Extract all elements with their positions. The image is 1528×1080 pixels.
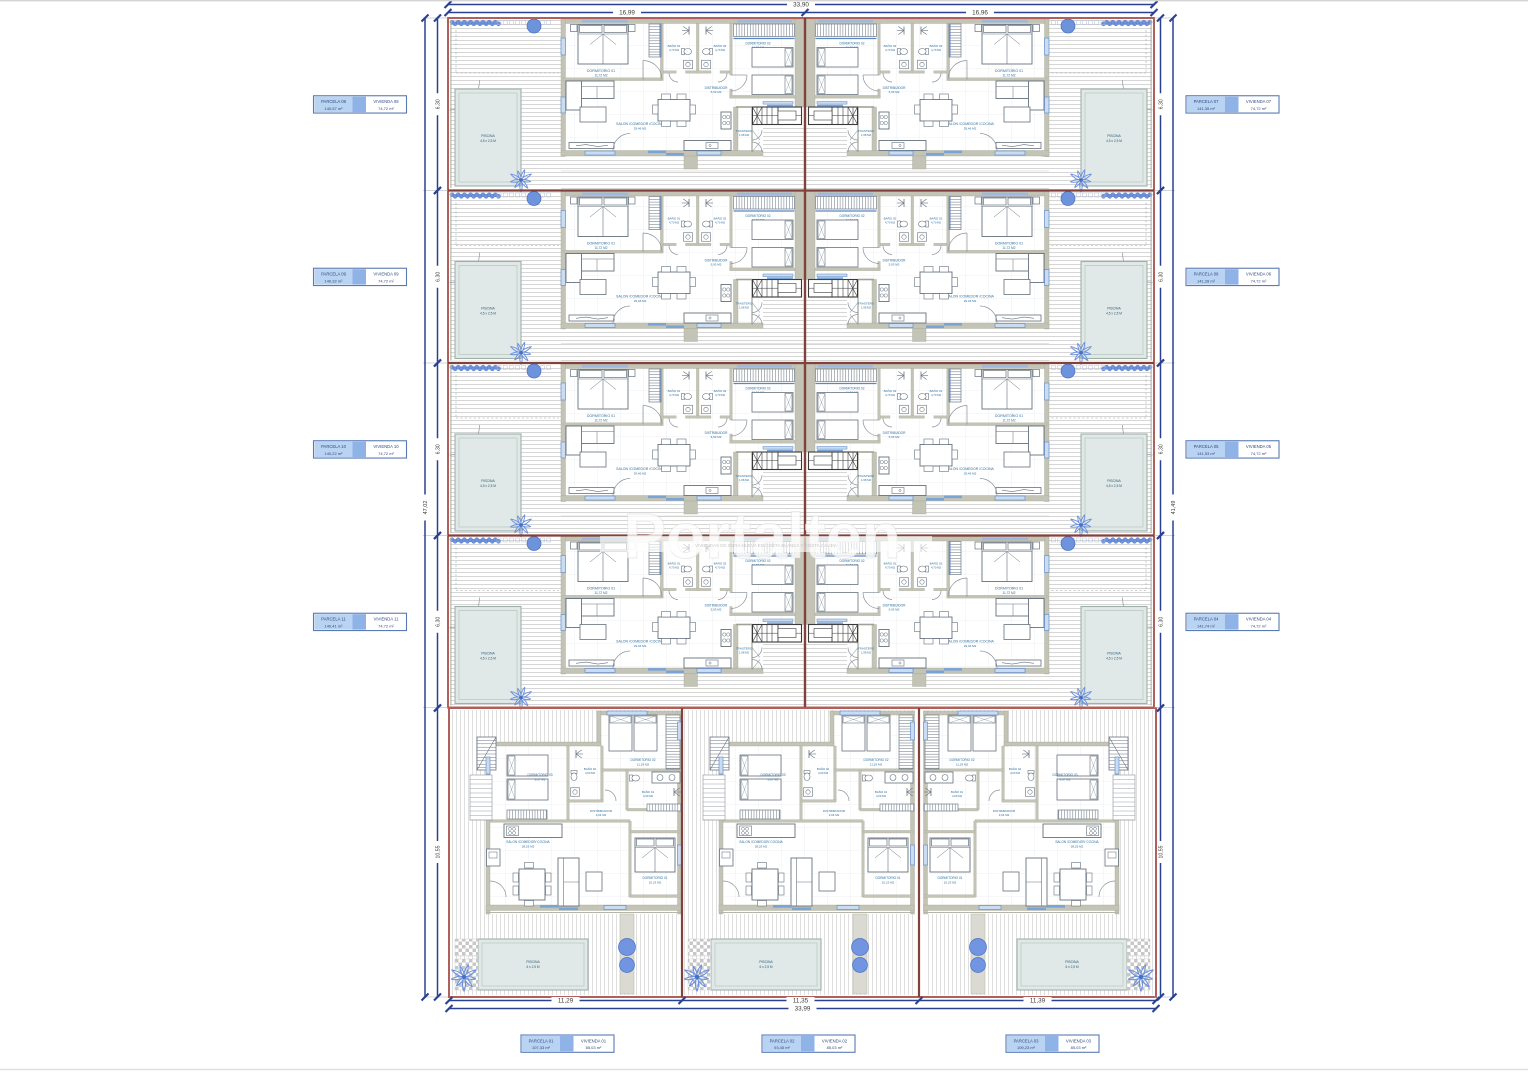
svg-text:DORMITORIO 02: DORMITORIO 02 <box>630 758 655 762</box>
svg-text:PISCINA: PISCINA <box>1107 652 1121 656</box>
svg-text:DORMITORIO 01: DORMITORIO 01 <box>587 414 615 418</box>
svg-text:11,35: 11,35 <box>793 998 809 1005</box>
svg-text:1,98 M2: 1,98 M2 <box>739 306 750 310</box>
svg-text:74,72 m²: 74,72 m² <box>378 451 394 456</box>
svg-text:4,5 x 2,5 M: 4,5 x 2,5 M <box>480 312 496 316</box>
svg-text:4,70 M2: 4,70 M2 <box>931 566 942 570</box>
svg-text:109,23 m²: 109,23 m² <box>1017 1045 1036 1050</box>
svg-text:4,70 M2: 4,70 M2 <box>931 48 942 52</box>
svg-text:29,46 M2: 29,46 M2 <box>964 299 977 303</box>
svg-text:4,70 M2: 4,70 M2 <box>715 48 726 52</box>
svg-text:28,25 M2: 28,25 M2 <box>755 845 768 849</box>
svg-text:4,5 x 2,5 M: 4,5 x 2,5 M <box>1106 139 1122 143</box>
svg-text:93,45 m²: 93,45 m² <box>774 1045 790 1050</box>
svg-text:VIVIENDA 05: VIVIENDA 05 <box>1246 444 1272 449</box>
svg-text:PARCELA 09: PARCELA 09 <box>321 272 346 277</box>
svg-text:PISCINA: PISCINA <box>1107 307 1121 311</box>
svg-text:33,90: 33,90 <box>793 2 809 9</box>
svg-text:11,29 M2: 11,29 M2 <box>870 763 883 767</box>
svg-text:1,98 M2: 1,98 M2 <box>739 478 750 482</box>
svg-text:5,93 M2: 5,93 M2 <box>889 90 900 94</box>
svg-text:PARCELA 01: PARCELA 01 <box>529 1038 554 1043</box>
svg-text:PISCINA: PISCINA <box>526 960 540 964</box>
svg-text:PARCELA 10: PARCELA 10 <box>321 444 346 449</box>
svg-text:11,39: 11,39 <box>1030 998 1046 1005</box>
svg-text:DORMITORIO 01: DORMITORIO 01 <box>995 414 1023 418</box>
svg-text:140,57 m²: 140,57 m² <box>324 106 343 111</box>
svg-text:107,33 m²: 107,33 m² <box>532 1045 551 1050</box>
svg-text:DORMITORIO 02: DORMITORIO 02 <box>949 758 974 762</box>
svg-text:3,04 M2: 3,04 M2 <box>596 813 607 817</box>
svg-text:VIVIENDA 01: VIVIENDA 01 <box>581 1038 607 1043</box>
svg-text:SALON /COMEDOR /COCINA: SALON /COMEDOR /COCINA <box>946 122 994 126</box>
svg-text:4,70 M2: 4,70 M2 <box>885 393 896 397</box>
svg-text:4,70 M2: 4,70 M2 <box>715 221 726 225</box>
svg-text:141,53 m²: 141,53 m² <box>1197 451 1216 456</box>
svg-text:85,03 m²: 85,03 m² <box>827 1045 843 1050</box>
svg-text:PARCELA 07: PARCELA 07 <box>1194 99 1219 104</box>
svg-text:85,03 m²: 85,03 m² <box>586 1045 602 1050</box>
svg-text:SALON /COMEDOR /COCINA: SALON /COMEDOR /COCINA <box>946 467 994 471</box>
svg-text:10,23 M2: 10,23 M2 <box>649 881 662 885</box>
svg-text:PISCINA: PISCINA <box>481 134 495 138</box>
svg-text:DORMITORIO 01: DORMITORIO 01 <box>642 876 667 880</box>
svg-text:1,98 M2: 1,98 M2 <box>861 478 872 482</box>
svg-text:SALON /COMEDOR/ COCINA: SALON /COMEDOR/ COCINA <box>739 840 783 844</box>
svg-text:1,98 M2: 1,98 M2 <box>861 651 872 655</box>
svg-text:6,30: 6,30 <box>436 617 442 627</box>
svg-text:85,03 m²: 85,03 m² <box>1071 1045 1087 1050</box>
svg-text:11,72 M2: 11,72 M2 <box>594 74 607 78</box>
svg-text:4,70 M2: 4,70 M2 <box>669 221 680 225</box>
svg-text:4,70 M2: 4,70 M2 <box>669 393 680 397</box>
svg-text:1,98 M2: 1,98 M2 <box>739 133 750 137</box>
svg-text:11,72 M2: 11,72 M2 <box>594 246 607 250</box>
svg-text:4,70 M2: 4,70 M2 <box>669 48 680 52</box>
svg-text:DORMITORIO 03: DORMITORIO 03 <box>760 773 785 777</box>
svg-text:SALON /COMEDOR/ COCINA: SALON /COMEDOR/ COCINA <box>506 840 550 844</box>
svg-text:10,55: 10,55 <box>436 845 442 858</box>
svg-text:SALON /COMEDOR /COCINA: SALON /COMEDOR /COCINA <box>946 295 994 299</box>
svg-text:DORMITORIO 01: DORMITORIO 01 <box>587 69 615 73</box>
svg-text:SALON /COMEDOR /COCINA: SALON /COMEDOR /COCINA <box>946 640 994 644</box>
svg-text:4,70 M2: 4,70 M2 <box>885 221 896 225</box>
svg-text:SALON /COMEDOR /COCINA: SALON /COMEDOR /COCINA <box>616 122 664 126</box>
svg-text:VIVIENDA 09: VIVIENDA 09 <box>373 272 399 277</box>
svg-text:DORMITORIO 03: DORMITORIO 03 <box>527 773 552 777</box>
svg-text:6 x 2,5 M: 6 x 2,5 M <box>759 965 772 969</box>
svg-text:5,93 M2: 5,93 M2 <box>711 435 722 439</box>
svg-text:VIVIENDA 11: VIVIENDA 11 <box>374 617 399 622</box>
svg-text:VIVIENDA 10: VIVIENDA 10 <box>373 444 399 449</box>
svg-text:VIVIENDAS DE OBRA NUEVA EN COS: VIVIENDAS DE OBRA NUEVA EN COSTA BLANCA … <box>695 543 837 548</box>
svg-text:141,28 m²: 141,28 m² <box>1197 278 1216 283</box>
svg-text:74,72 m²: 74,72 m² <box>378 623 394 628</box>
svg-text:1,98 M2: 1,98 M2 <box>739 651 750 655</box>
svg-text:PARCELA 08: PARCELA 08 <box>321 99 346 104</box>
svg-text:5,93 M2: 5,93 M2 <box>889 435 900 439</box>
svg-text:PARCELA 11: PARCELA 11 <box>321 617 346 622</box>
svg-text:29,46 M2: 29,46 M2 <box>964 644 977 648</box>
svg-text:74,72 m²: 74,72 m² <box>1251 451 1267 456</box>
svg-text:4,70 M2: 4,70 M2 <box>931 221 942 225</box>
svg-text:PISCINA: PISCINA <box>1065 960 1079 964</box>
svg-text:DORMITORIO 01: DORMITORIO 01 <box>995 69 1023 73</box>
svg-text:28,25 M2: 28,25 M2 <box>522 845 535 849</box>
svg-text:5,93 M2: 5,93 M2 <box>711 90 722 94</box>
svg-text:16,99: 16,99 <box>619 10 635 17</box>
svg-text:VIVIENDA 06: VIVIENDA 06 <box>1246 272 1272 277</box>
svg-text:4,09 M2: 4,09 M2 <box>952 794 963 798</box>
svg-text:VIVIENDA 02: VIVIENDA 02 <box>822 1038 848 1043</box>
svg-text:4,00 M2: 4,00 M2 <box>818 771 829 775</box>
svg-text:5,93 M2: 5,93 M2 <box>711 263 722 267</box>
svg-text:6,30: 6,30 <box>436 272 442 282</box>
svg-text:10,55: 10,55 <box>1159 845 1165 858</box>
svg-text:11,72 M2: 11,72 M2 <box>1002 74 1015 78</box>
svg-text:PARCELA 04: PARCELA 04 <box>1194 617 1219 622</box>
svg-text:6,30: 6,30 <box>1159 99 1165 109</box>
svg-text:PISCINA: PISCINA <box>481 479 495 483</box>
svg-text:8,67 M2: 8,67 M2 <box>1060 778 1071 782</box>
svg-text:4,70 M2: 4,70 M2 <box>885 48 896 52</box>
svg-text:10,23 M2: 10,23 M2 <box>944 881 957 885</box>
svg-text:29,46 M2: 29,46 M2 <box>634 644 647 648</box>
svg-text:SALON /COMEDOR /COCINA: SALON /COMEDOR /COCINA <box>616 640 664 644</box>
svg-text:4,5 x 2,5 M: 4,5 x 2,5 M <box>480 657 496 661</box>
svg-text:4,70 M2: 4,70 M2 <box>715 393 726 397</box>
svg-text:141,35 m²: 141,35 m² <box>1197 106 1216 111</box>
svg-text:VIVIENDA 03: VIVIENDA 03 <box>1066 1038 1092 1043</box>
svg-text:PISCINA: PISCINA <box>481 652 495 656</box>
svg-text:4,09 M2: 4,09 M2 <box>643 794 654 798</box>
svg-text:74,72 m²: 74,72 m² <box>1251 278 1267 283</box>
svg-text:PISCINA: PISCINA <box>1107 134 1121 138</box>
svg-text:4,5 x 2,5 M: 4,5 x 2,5 M <box>1106 484 1122 488</box>
svg-text:1,98 M2: 1,98 M2 <box>861 306 872 310</box>
svg-text:41,49: 41,49 <box>1171 501 1177 515</box>
svg-text:29,46 M2: 29,46 M2 <box>634 299 647 303</box>
svg-text:47,02: 47,02 <box>423 501 429 515</box>
svg-text:DORMITORIO 01: DORMITORIO 01 <box>587 587 615 591</box>
svg-text:6 x 2,5 M: 6 x 2,5 M <box>526 965 539 969</box>
svg-text:DORMITORIO 01: DORMITORIO 01 <box>587 242 615 246</box>
svg-text:PISCINA: PISCINA <box>759 960 773 964</box>
svg-text:11,72 M2: 11,72 M2 <box>594 591 607 595</box>
svg-text:6,30: 6,30 <box>436 99 442 109</box>
svg-text:DORMITORIO 01: DORMITORIO 01 <box>995 242 1023 246</box>
svg-text:11,72 M2: 11,72 M2 <box>594 419 607 423</box>
svg-text:DORMITORIO 02: DORMITORIO 02 <box>863 758 888 762</box>
svg-text:VIVIENDA 08: VIVIENDA 08 <box>373 99 399 104</box>
svg-text:DORMITORIO 01: DORMITORIO 01 <box>937 876 962 880</box>
svg-text:6 x 2,5 M: 6 x 2,5 M <box>1065 965 1078 969</box>
svg-text:1,98 M2: 1,98 M2 <box>861 133 872 137</box>
svg-text:8,67 M2: 8,67 M2 <box>535 778 546 782</box>
svg-text:74,72 m²: 74,72 m² <box>378 278 394 283</box>
svg-text:29,46 M2: 29,46 M2 <box>634 472 647 476</box>
svg-text:3,04 M2: 3,04 M2 <box>829 813 840 817</box>
svg-text:11,72 M2: 11,72 M2 <box>1002 246 1015 250</box>
svg-text:10,23 M2: 10,23 M2 <box>882 881 895 885</box>
svg-text:5,93 M2: 5,93 M2 <box>889 608 900 612</box>
svg-text:SALON /COMEDOR /COCINA: SALON /COMEDOR /COCINA <box>616 467 664 471</box>
svg-text:6,30: 6,30 <box>436 444 442 454</box>
svg-text:4,5 x 2,5 M: 4,5 x 2,5 M <box>480 139 496 143</box>
svg-text:PARCELA 05: PARCELA 05 <box>1194 444 1219 449</box>
svg-text:PARCELA 02: PARCELA 02 <box>770 1038 795 1043</box>
svg-text:74,72 m²: 74,72 m² <box>1251 623 1267 628</box>
svg-text:PARCELA 06: PARCELA 06 <box>1194 272 1219 277</box>
svg-text:6,30: 6,30 <box>1159 272 1165 282</box>
svg-text:4,00 M2: 4,00 M2 <box>585 771 596 775</box>
svg-text:29,46 M2: 29,46 M2 <box>964 472 977 476</box>
svg-text:74,72 m²: 74,72 m² <box>378 106 394 111</box>
svg-text:6,30: 6,30 <box>1159 617 1165 627</box>
svg-text:11,29 M2: 11,29 M2 <box>956 763 969 767</box>
svg-text:5,93 M2: 5,93 M2 <box>889 263 900 267</box>
svg-text:29,46 M2: 29,46 M2 <box>964 127 977 131</box>
svg-text:DORMITORIO 03: DORMITORIO 03 <box>1052 773 1077 777</box>
svg-text:DORMITORIO 01: DORMITORIO 01 <box>995 587 1023 591</box>
svg-text:5,93 M2: 5,93 M2 <box>711 608 722 612</box>
svg-text:DORMITORIO 01: DORMITORIO 01 <box>875 876 900 880</box>
svg-text:4,5 x 2,5 M: 4,5 x 2,5 M <box>480 484 496 488</box>
svg-text:16,96: 16,96 <box>972 10 988 17</box>
svg-text:VIVIENDA 04: VIVIENDA 04 <box>1246 617 1272 622</box>
svg-text:11,29: 11,29 <box>558 998 574 1005</box>
svg-text:PISCINA: PISCINA <box>1107 479 1121 483</box>
svg-text:11,29 M2: 11,29 M2 <box>637 763 650 767</box>
svg-text:PISCINA: PISCINA <box>481 307 495 311</box>
svg-text:4,00 M2: 4,00 M2 <box>1010 771 1021 775</box>
svg-text:28,25 M2: 28,25 M2 <box>1071 845 1084 849</box>
svg-text:141,74 m²: 141,74 m² <box>1197 623 1216 628</box>
svg-text:6,30: 6,30 <box>1159 444 1165 454</box>
svg-text:VIVIENDA 07: VIVIENDA 07 <box>1246 99 1272 104</box>
svg-text:140,32 m²: 140,32 m² <box>324 278 343 283</box>
svg-text:8,67 M2: 8,67 M2 <box>768 778 779 782</box>
svg-text:4,09 M2: 4,09 M2 <box>876 794 887 798</box>
svg-text:140,22 m²: 140,22 m² <box>324 451 343 456</box>
svg-text:4,5 x 2,5 M: 4,5 x 2,5 M <box>1106 312 1122 316</box>
svg-text:33,99: 33,99 <box>795 1006 811 1013</box>
svg-text:PARCELA 03: PARCELA 03 <box>1014 1038 1039 1043</box>
svg-text:29,46 M2: 29,46 M2 <box>634 127 647 131</box>
svg-text:11,72 M2: 11,72 M2 <box>1002 591 1015 595</box>
svg-text:SALON /COMEDOR /COCINA: SALON /COMEDOR /COCINA <box>616 295 664 299</box>
svg-text:11,72 M2: 11,72 M2 <box>1002 419 1015 423</box>
svg-text:140,41 m²: 140,41 m² <box>324 623 343 628</box>
svg-text:4,70 M2: 4,70 M2 <box>931 393 942 397</box>
svg-text:4,5 x 2,5 M: 4,5 x 2,5 M <box>1106 657 1122 661</box>
svg-text:74,72 m²: 74,72 m² <box>1251 106 1267 111</box>
svg-text:3,04 M2: 3,04 M2 <box>999 813 1010 817</box>
svg-text:SALON /COMEDOR/ COCINA: SALON /COMEDOR/ COCINA <box>1055 840 1099 844</box>
